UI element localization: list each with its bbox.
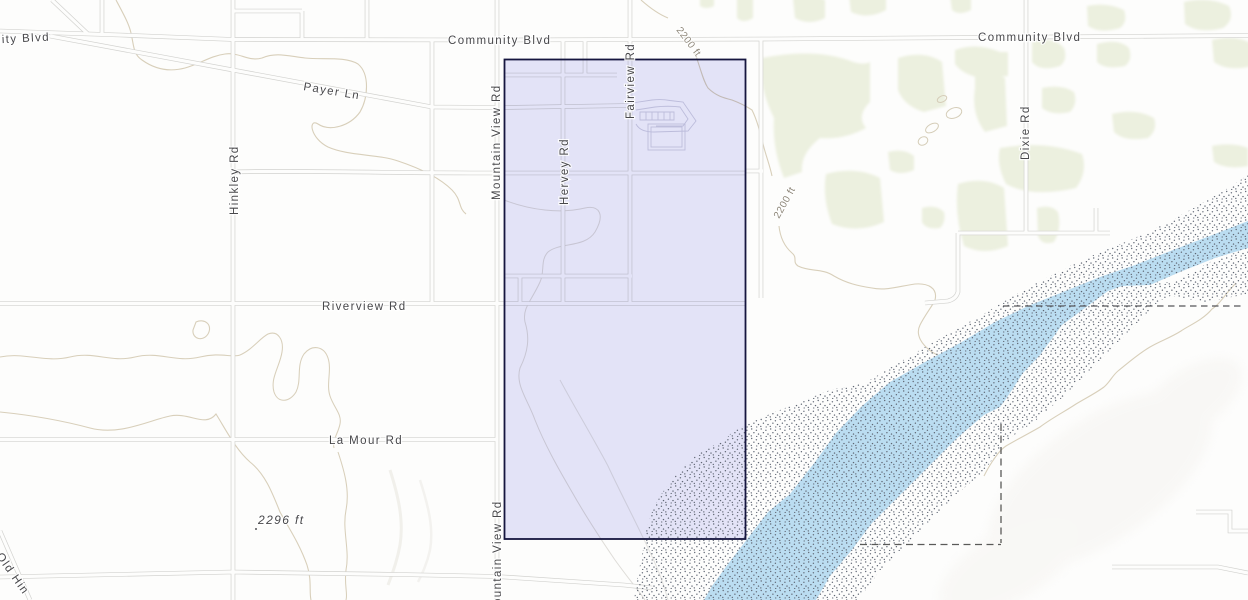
svg-text:2296 ft: 2296 ft bbox=[257, 513, 305, 527]
svg-text:Hinkley Rd: Hinkley Rd bbox=[229, 145, 241, 215]
svg-text:Riverview Rd: Riverview Rd bbox=[322, 301, 407, 313]
svg-text:Mountain View Rd: Mountain View Rd bbox=[492, 500, 504, 600]
svg-text:Community Blvd: Community Blvd bbox=[978, 32, 1081, 44]
svg-text:Mountain View Rd: Mountain View Rd bbox=[491, 84, 503, 200]
svg-text:Dixie Rd: Dixie Rd bbox=[1020, 105, 1032, 160]
svg-text:Fairview Rd: Fairview Rd bbox=[625, 43, 637, 119]
svg-text:La Mour Rd: La Mour Rd bbox=[329, 435, 403, 447]
svg-text:Hervey Rd: Hervey Rd bbox=[559, 138, 571, 205]
svg-text:Community Blvd: Community Blvd bbox=[448, 35, 551, 47]
